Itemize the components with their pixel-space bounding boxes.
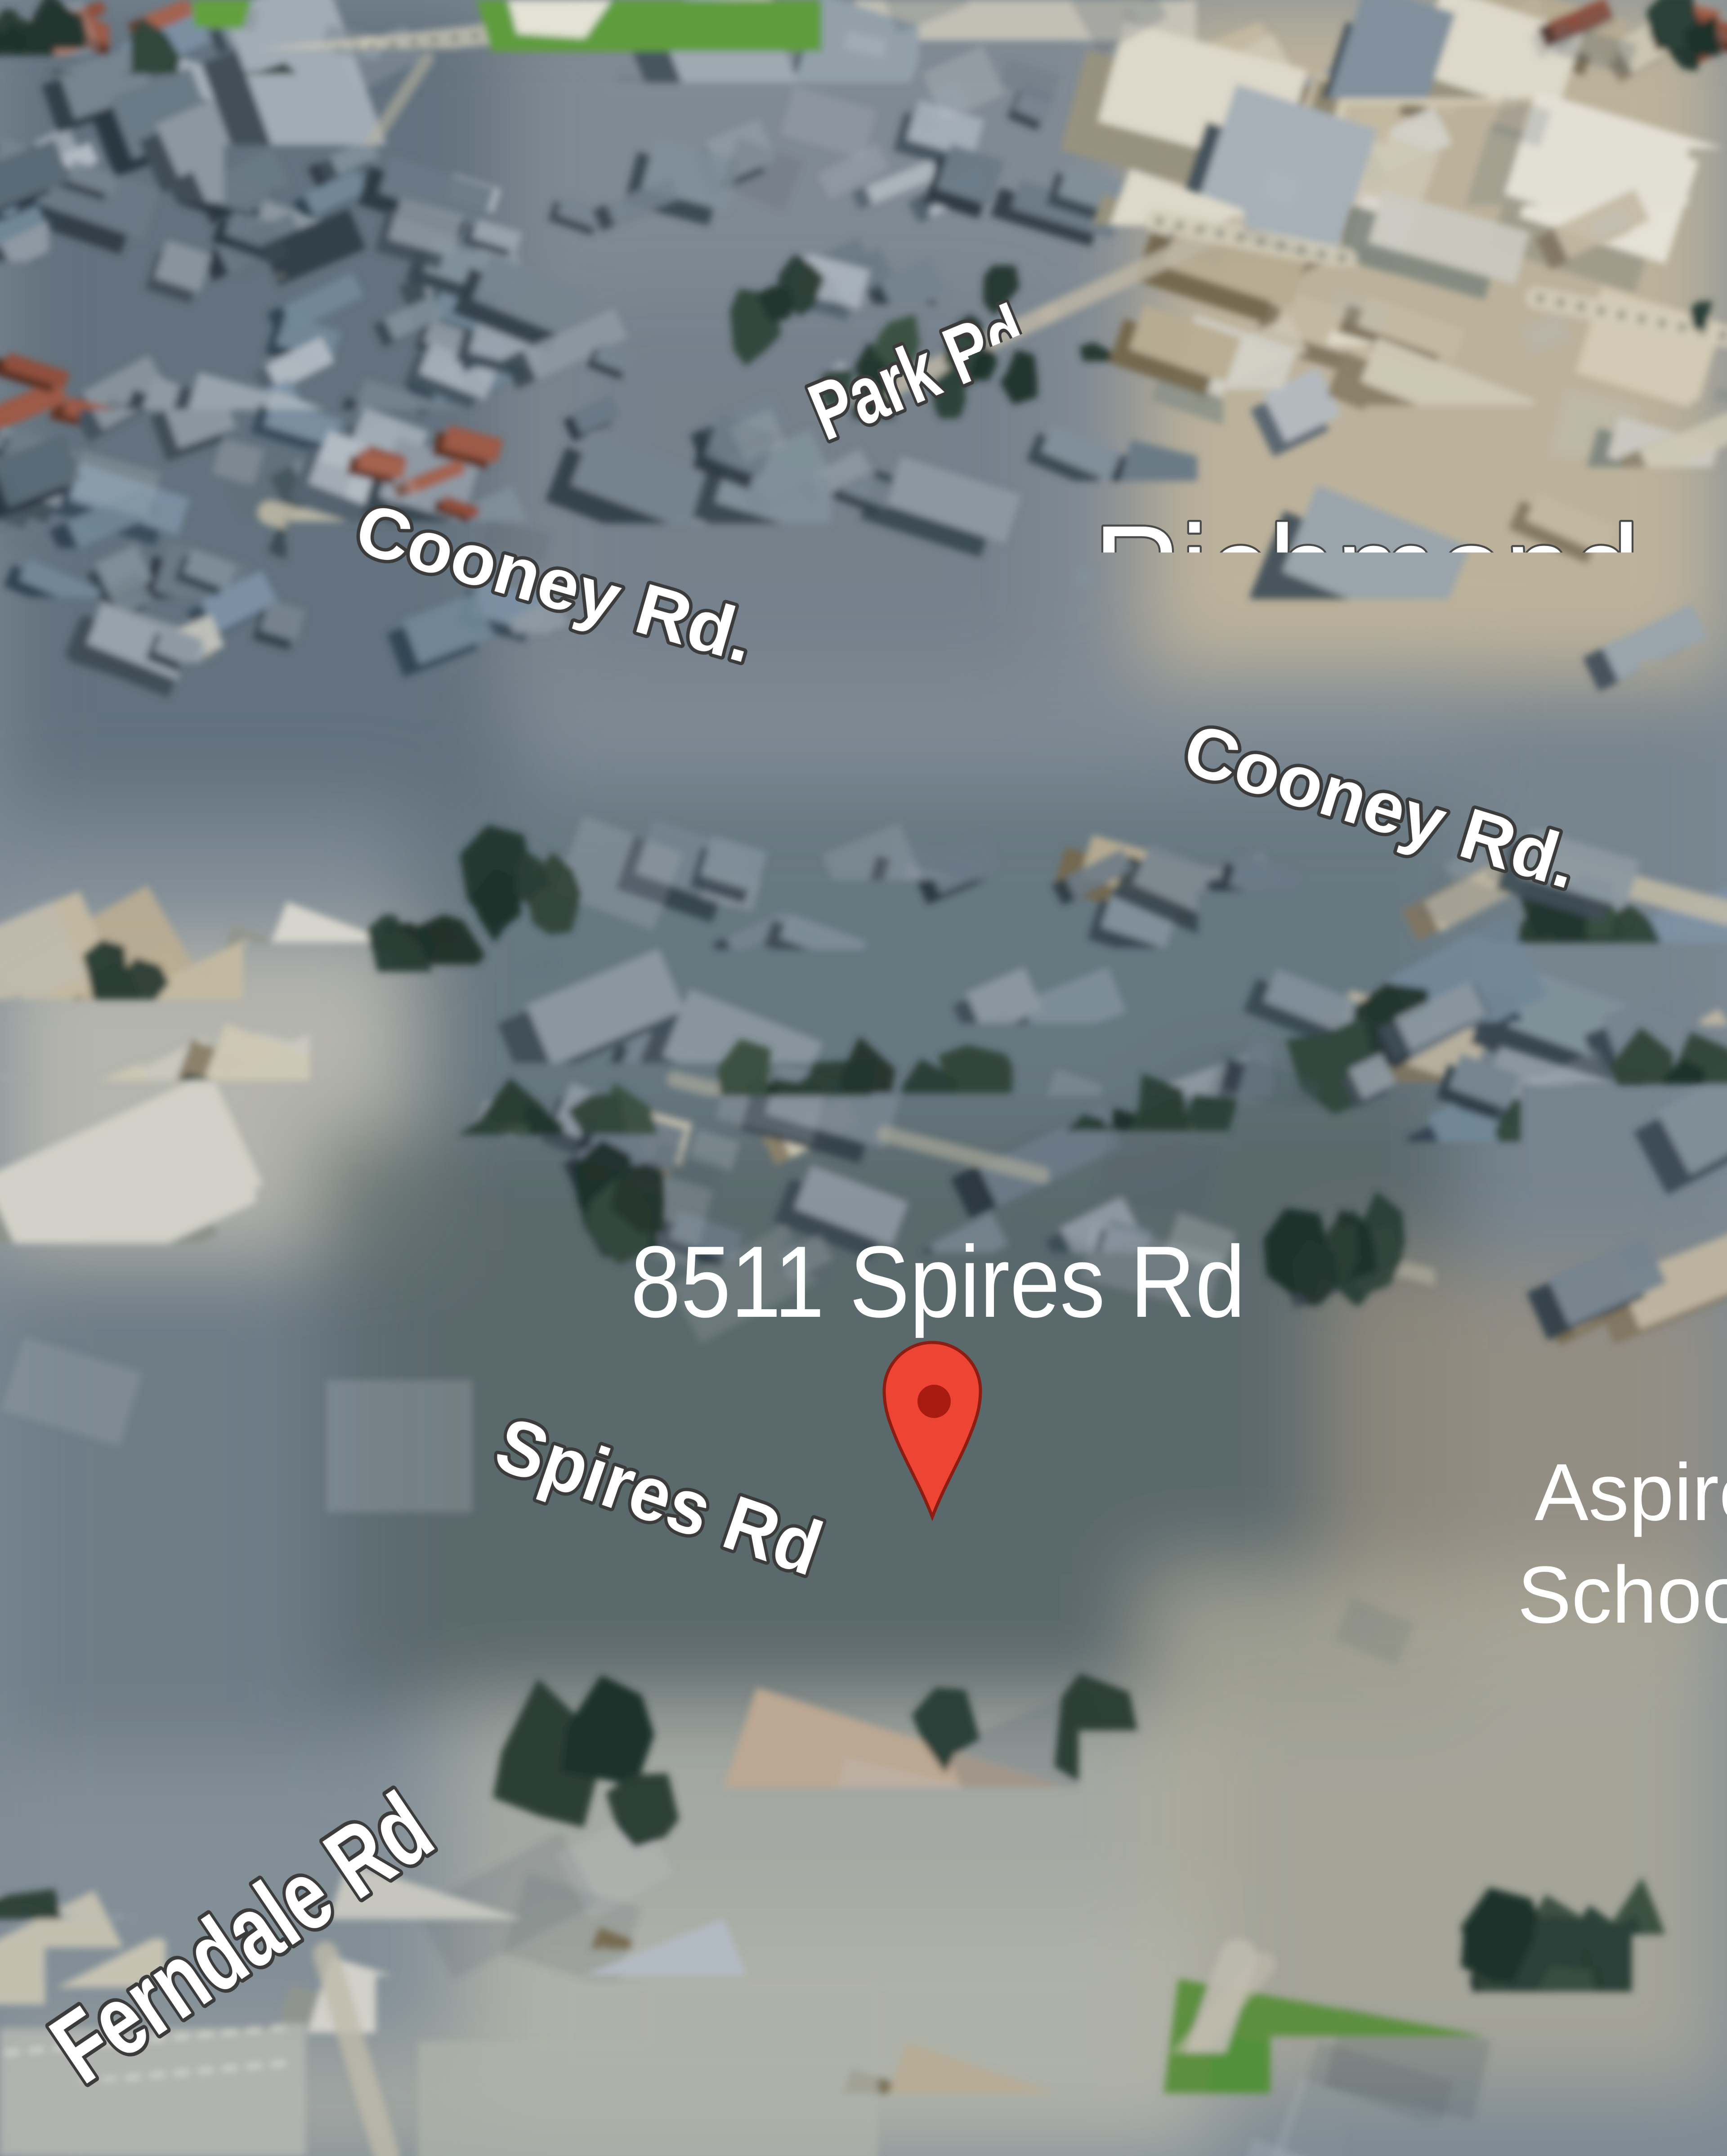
svg-text:School: School — [1517, 1550, 1727, 1640]
svg-text:Richmond: Richmond — [1093, 499, 1640, 642]
svg-text:8511 Spires Rd: 8511 Spires Rd — [631, 1225, 1245, 1338]
svg-text:Aspire: Aspire — [1535, 1447, 1727, 1538]
